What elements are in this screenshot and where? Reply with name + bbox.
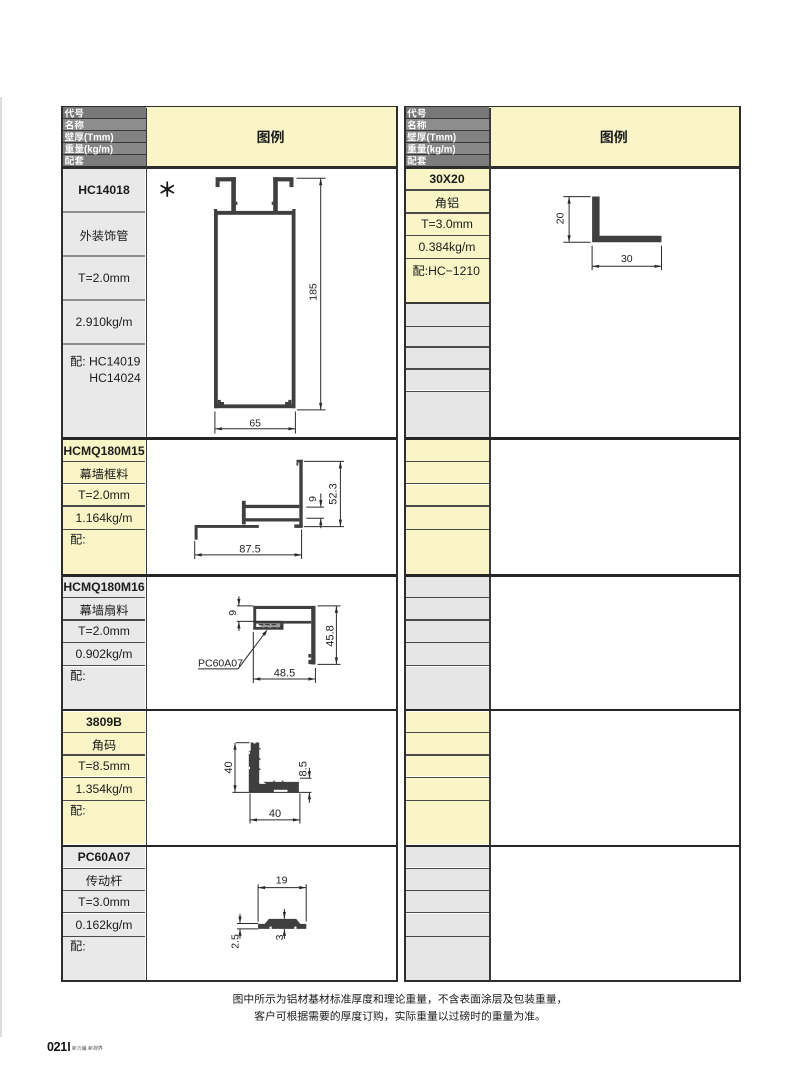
- svg-text:HC14024: HC14024: [89, 371, 141, 385]
- svg-text:30: 30: [621, 253, 633, 265]
- svg-text:9: 9: [307, 496, 319, 502]
- svg-text:9: 9: [227, 610, 239, 616]
- svg-text:52.3: 52.3: [328, 483, 340, 504]
- svg-text:8.5: 8.5: [297, 761, 309, 776]
- svg-text::HC−1210: :HC−1210: [425, 264, 480, 278]
- svg-text:19: 19: [276, 875, 288, 887]
- svg-text:20: 20: [555, 212, 567, 224]
- svg-text:45.8: 45.8: [325, 625, 337, 646]
- svg-text:(Tmm): (Tmm): [84, 132, 114, 143]
- svg-text:185: 185: [308, 283, 320, 301]
- svg-text:2.5: 2.5: [230, 934, 242, 949]
- svg-text:(kg/m): (kg/m): [427, 144, 456, 155]
- svg-text::: :: [82, 939, 85, 953]
- svg-text::: :: [82, 669, 85, 683]
- svg-text:: HC14019: : HC14019: [82, 355, 140, 369]
- svg-text:3: 3: [274, 934, 286, 940]
- svg-text:48.5: 48.5: [274, 667, 295, 679]
- svg-text:87.5: 87.5: [239, 544, 260, 556]
- svg-text:(Tmm): (Tmm): [427, 132, 457, 143]
- svg-text:PC60A07: PC60A07: [198, 658, 243, 670]
- svg-text:40: 40: [269, 808, 281, 820]
- svg-text::: :: [82, 533, 85, 547]
- svg-text::: :: [82, 804, 85, 818]
- svg-text:.: .: [87, 1047, 88, 1052]
- svg-text:(kg/m): (kg/m): [84, 144, 113, 155]
- svg-text:65: 65: [249, 418, 261, 430]
- svg-text:40: 40: [223, 761, 235, 773]
